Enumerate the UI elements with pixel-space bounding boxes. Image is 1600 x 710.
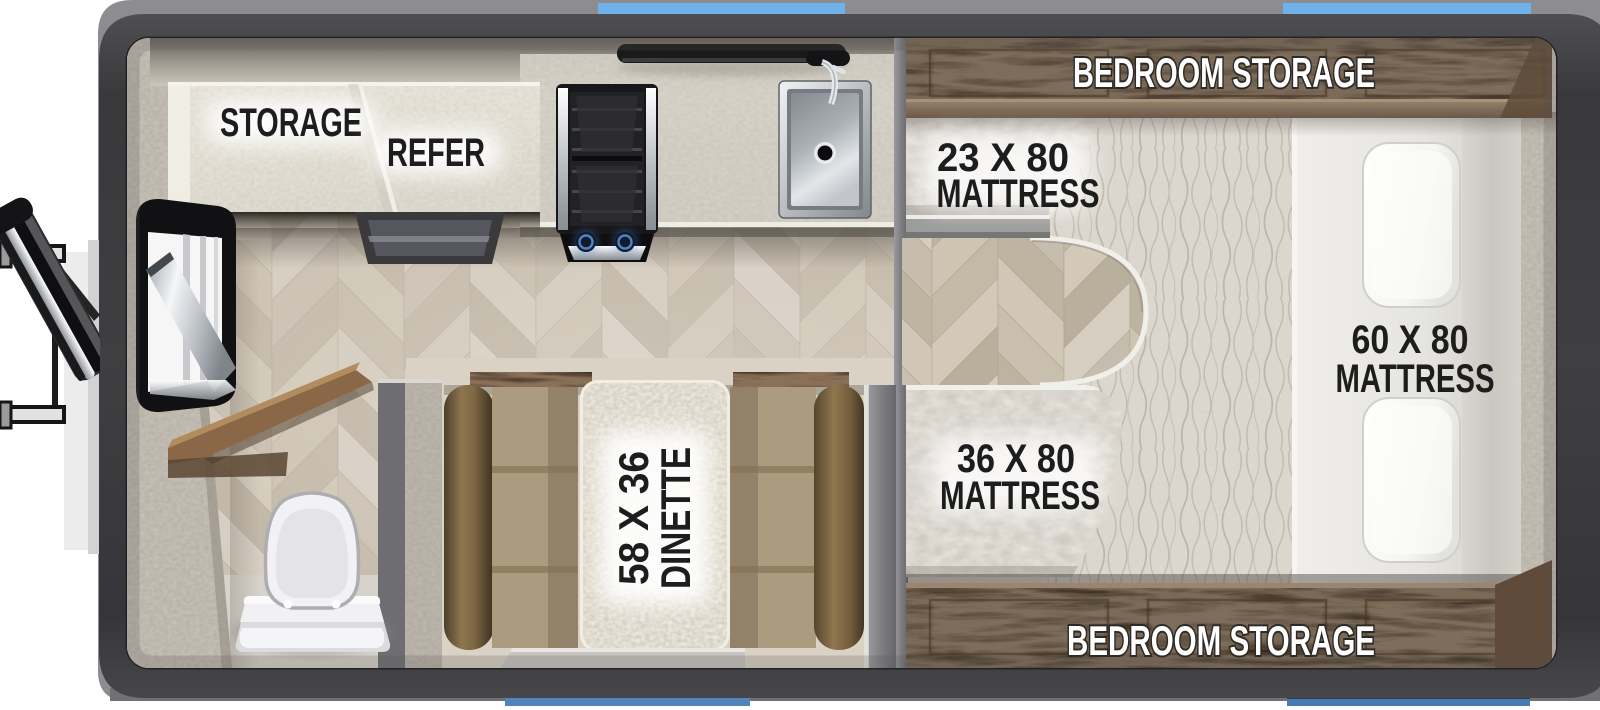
- svg-text:STORAGE: STORAGE: [220, 101, 362, 145]
- svg-text:BEDROOM STORAGE: BEDROOM STORAGE: [1073, 49, 1375, 96]
- svg-text:MATTRESS: MATTRESS: [937, 172, 1100, 216]
- svg-text:BEDROOM STORAGE: BEDROOM STORAGE: [1067, 617, 1375, 664]
- svg-text:MATTRESS: MATTRESS: [1336, 357, 1495, 401]
- svg-text:58 X 36: 58 X 36: [610, 451, 657, 585]
- svg-text:DINETTE: DINETTE: [652, 447, 699, 589]
- svg-text:REFER: REFER: [387, 131, 485, 175]
- svg-text:MATTRESS: MATTRESS: [940, 474, 1100, 518]
- svg-text:60 X 80: 60 X 80: [1352, 318, 1469, 362]
